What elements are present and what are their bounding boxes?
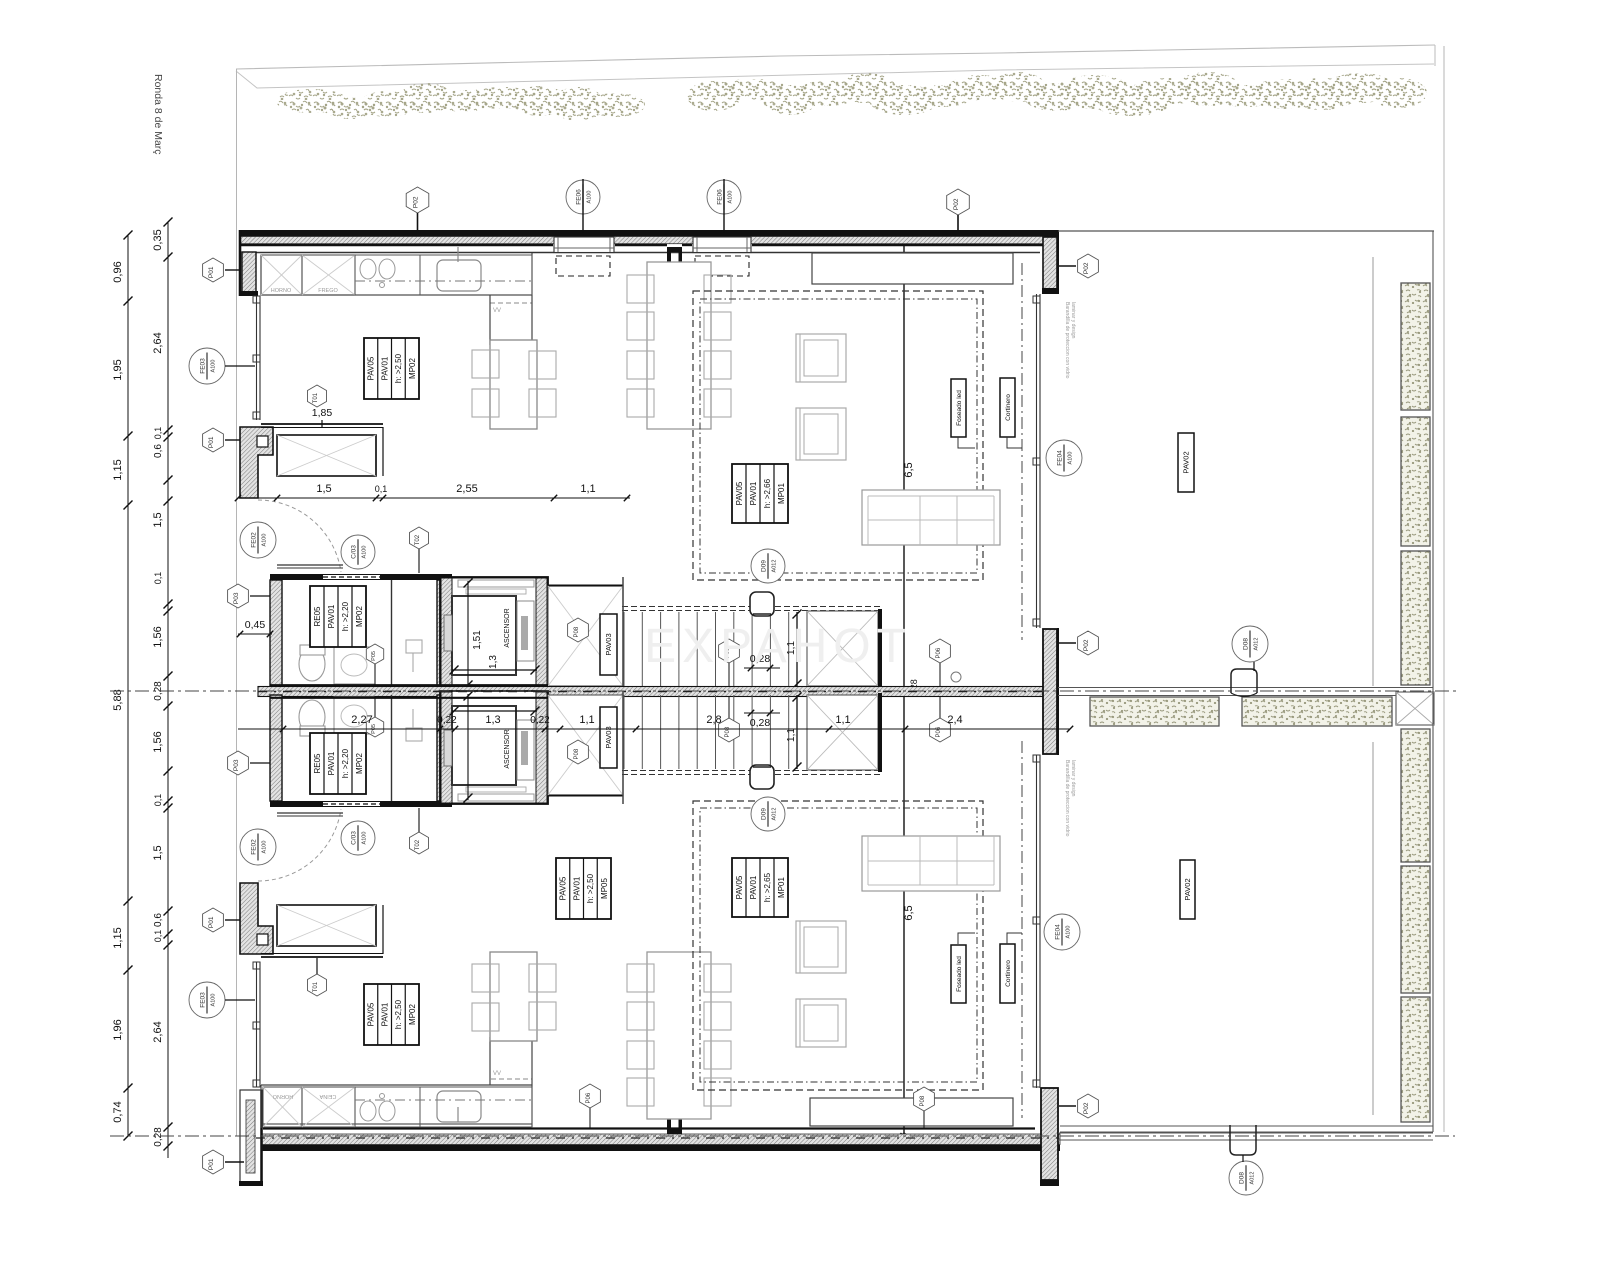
svg-text:T01: T01 (313, 392, 319, 403)
svg-text:P01: P01 (208, 436, 215, 448)
svg-text:P02: P02 (1083, 262, 1090, 274)
svg-text:h: >2,50: h: >2,50 (394, 999, 403, 1029)
svg-text:1,3: 1,3 (485, 714, 500, 726)
svg-text:1,51: 1,51 (472, 630, 483, 650)
svg-text:Cortinero: Cortinero (1005, 960, 1012, 987)
svg-text:P03: P03 (233, 759, 240, 771)
svg-text:HORNO: HORNO (271, 288, 292, 294)
svg-text:P02: P02 (1083, 639, 1090, 651)
svg-text:A012: A012 (1250, 1172, 1256, 1185)
svg-text:1,5: 1,5 (316, 483, 331, 495)
svg-text:0,45: 0,45 (245, 619, 266, 631)
svg-text:C/03: C/03 (351, 545, 358, 559)
svg-text:0,6: 0,6 (153, 444, 164, 458)
svg-text:h: >2,65: h: >2,65 (763, 872, 772, 902)
svg-text:0,28: 0,28 (153, 1127, 164, 1147)
svg-text:PAV05: PAV05 (735, 875, 744, 899)
svg-text:PAV03: PAV03 (604, 633, 613, 655)
svg-text:P06: P06 (586, 1092, 592, 1103)
svg-text:h: >2,66: h: >2,66 (763, 478, 772, 508)
svg-text:P08: P08 (725, 726, 731, 737)
svg-text:RE05: RE05 (313, 753, 322, 774)
svg-text:D09: D09 (761, 560, 768, 572)
svg-text:0,1: 0,1 (153, 572, 163, 585)
svg-text:2,64: 2,64 (152, 1021, 164, 1042)
svg-text:0,1: 0,1 (153, 930, 163, 943)
svg-text:P03: P03 (233, 592, 240, 604)
svg-text:MP02: MP02 (355, 606, 364, 627)
svg-text:1,95: 1,95 (112, 359, 124, 380)
svg-text:A100: A100 (362, 832, 368, 845)
svg-text:P08: P08 (574, 626, 580, 637)
svg-text:6,5: 6,5 (903, 905, 915, 920)
svg-text:0,1: 0,1 (153, 427, 163, 440)
svg-text:P01: P01 (208, 1158, 215, 1170)
svg-text:PAV05: PAV05 (367, 1002, 376, 1026)
svg-text:A012: A012 (1254, 638, 1260, 651)
svg-text:A100: A100 (587, 191, 593, 204)
svg-text:1,5: 1,5 (152, 512, 164, 527)
svg-text:MP05: MP05 (600, 878, 609, 899)
svg-text:PAV01: PAV01 (380, 356, 389, 380)
svg-text:P02: P02 (413, 196, 420, 208)
svg-text:D08: D08 (1243, 638, 1250, 650)
svg-text:1,1: 1,1 (580, 483, 595, 495)
svg-text:2,8: 2,8 (706, 714, 721, 726)
svg-text:P01: P01 (208, 916, 215, 928)
svg-text:P06: P06 (936, 726, 942, 737)
svg-text:PAV05: PAV05 (367, 356, 376, 380)
svg-text:FE03: FE03 (200, 358, 207, 374)
svg-text:T02: T02 (415, 534, 421, 545)
svg-text:A100: A100 (1066, 926, 1072, 939)
svg-text:laminar y design: laminar y design (1070, 302, 1076, 339)
svg-text:A100: A100 (211, 360, 217, 373)
svg-text:1,15: 1,15 (112, 927, 124, 948)
svg-text:2,4: 2,4 (947, 714, 962, 726)
svg-text:1,1: 1,1 (579, 714, 594, 726)
svg-text:P08: P08 (920, 1095, 926, 1106)
svg-text:RE05: RE05 (313, 606, 322, 627)
svg-text:h: >2,50: h: >2,50 (586, 873, 595, 903)
svg-text:MP02: MP02 (408, 358, 417, 379)
svg-text:MP02: MP02 (355, 753, 364, 774)
svg-text:A100: A100 (1068, 452, 1074, 465)
svg-text:5,88: 5,88 (112, 689, 124, 710)
svg-text:P02: P02 (953, 198, 960, 210)
svg-text:ASCENSOR: ASCENSOR (504, 729, 511, 768)
svg-text:6,5: 6,5 (903, 462, 915, 477)
svg-text:PAV02: PAV02 (1183, 878, 1192, 900)
svg-text:FE02: FE02 (251, 532, 258, 548)
svg-text:P01: P01 (208, 266, 215, 278)
svg-text:MP02: MP02 (408, 1004, 417, 1025)
svg-text:ASCENSOR: ASCENSOR (504, 608, 511, 647)
svg-text:MP01: MP01 (777, 877, 786, 898)
svg-text:PAV01: PAV01 (327, 604, 336, 628)
svg-text:FE03: FE03 (200, 992, 207, 1008)
svg-text:FREGO: FREGO (318, 288, 338, 294)
svg-text:PAV01: PAV01 (572, 876, 581, 900)
svg-text:0,74: 0,74 (112, 1101, 124, 1122)
svg-text:PAV01: PAV01 (380, 1002, 389, 1026)
svg-text:2,64: 2,64 (152, 332, 164, 353)
svg-text:P05: P05 (371, 651, 377, 661)
svg-text:VV: VV (493, 1071, 501, 1077)
svg-text:Barandilla de proteccion con v: Barandilla de proteccion con vidrio (1064, 760, 1070, 837)
svg-text:FE06: FE06 (576, 189, 583, 205)
svg-text:FE04: FE04 (1057, 450, 1064, 466)
svg-text:1,3: 1,3 (488, 655, 499, 669)
svg-text:FE02: FE02 (251, 839, 258, 855)
svg-text:PAV03: PAV03 (604, 726, 613, 748)
svg-text:2,55: 2,55 (456, 483, 477, 495)
svg-text:FE04: FE04 (1055, 924, 1062, 940)
svg-text:VV: VV (493, 308, 501, 314)
svg-text:Ronda 8 de Març: Ronda 8 de Març (152, 74, 164, 155)
svg-text:Barandilla de proteccion con v: Barandilla de proteccion con vidrio (1064, 302, 1070, 379)
svg-text:1,85: 1,85 (312, 407, 333, 419)
svg-text:0,6: 0,6 (153, 913, 164, 927)
svg-text:D08: D08 (1239, 1172, 1246, 1184)
svg-text:0,35: 0,35 (152, 229, 164, 250)
svg-text:P06: P06 (936, 647, 942, 658)
svg-text:A100: A100 (262, 534, 268, 547)
svg-text:2,27: 2,27 (351, 714, 372, 726)
svg-text:Foseado led: Foseado led (956, 390, 963, 426)
svg-text:C/03: C/03 (351, 831, 358, 845)
svg-text:h: >2,50: h: >2,50 (394, 353, 403, 383)
svg-text:PAV01: PAV01 (327, 751, 336, 775)
svg-text:0,22: 0,22 (437, 715, 457, 726)
svg-text:MP01: MP01 (777, 483, 786, 504)
svg-text:1,1: 1,1 (786, 728, 797, 742)
svg-text:0,28: 0,28 (750, 717, 771, 729)
svg-text:A100: A100 (262, 841, 268, 854)
svg-text:0,96: 0,96 (112, 261, 124, 282)
svg-text:1,56: 1,56 (152, 626, 164, 647)
svg-text:laminar y design: laminar y design (1070, 760, 1076, 797)
svg-text:0,22: 0,22 (530, 715, 550, 726)
svg-text:T01: T01 (313, 981, 319, 992)
svg-text:D09: D09 (761, 808, 768, 820)
svg-text:1,15: 1,15 (112, 459, 124, 480)
svg-text:PAV01: PAV01 (749, 875, 758, 899)
svg-text:EXPAHOT: EXPAHOT (644, 620, 912, 673)
svg-text:T02: T02 (415, 839, 421, 850)
svg-text:0,1: 0,1 (153, 794, 163, 807)
svg-text:PAV02: PAV02 (1182, 451, 1191, 473)
svg-text:A100: A100 (362, 546, 368, 559)
svg-text:CEINA: CEINA (319, 1093, 336, 1099)
svg-text:A100: A100 (211, 994, 217, 1007)
svg-text:Cortinero: Cortinero (1005, 394, 1012, 421)
svg-text:h: >2,20: h: >2,20 (341, 748, 350, 778)
svg-text:PAV05: PAV05 (559, 876, 568, 900)
svg-text:FE06: FE06 (717, 189, 724, 205)
svg-text:h: >2,20: h: >2,20 (341, 601, 350, 631)
svg-text:1,56: 1,56 (152, 731, 164, 752)
svg-text:1,1: 1,1 (835, 714, 850, 726)
svg-text:PAV01: PAV01 (749, 481, 758, 505)
svg-text:HORNO: HORNO (272, 1093, 293, 1099)
svg-text:P02: P02 (1083, 1102, 1090, 1114)
svg-text:A012: A012 (772, 560, 778, 573)
svg-text:1,96: 1,96 (112, 1019, 124, 1040)
svg-text:P08: P08 (574, 748, 580, 759)
svg-text:1,5: 1,5 (152, 845, 164, 860)
svg-text:Foseado led: Foseado led (956, 956, 963, 992)
svg-text:0,1: 0,1 (375, 484, 388, 494)
svg-text:PAV05: PAV05 (735, 481, 744, 505)
svg-text:A100: A100 (728, 191, 734, 204)
svg-text:A012: A012 (772, 808, 778, 821)
